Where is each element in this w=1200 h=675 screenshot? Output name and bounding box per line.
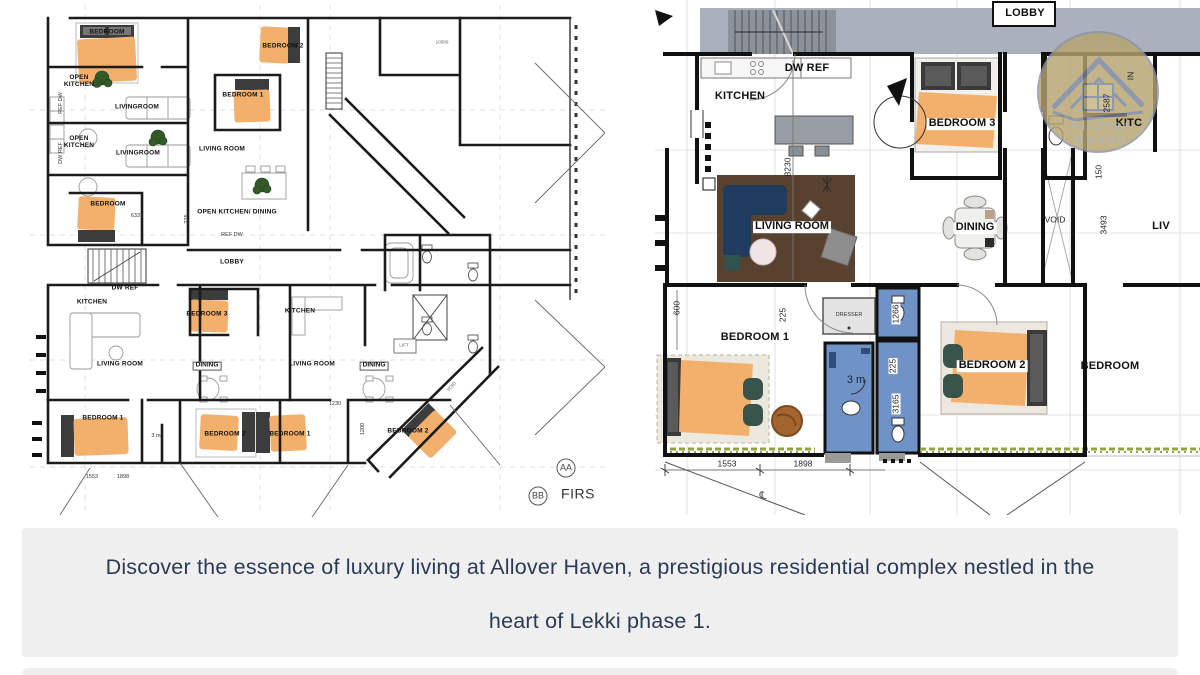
- room-label-dining: DINING: [954, 222, 997, 234]
- fixture-label-dresser: DRESSER: [836, 313, 863, 319]
- dim-label: 3493: [1100, 216, 1109, 235]
- room-label-living-room: LIVING ROOM: [97, 362, 143, 369]
- dim-label: 1898: [794, 460, 813, 469]
- caption-line-2: heart of Lekki phase 1.: [22, 594, 1178, 648]
- floorplan-right-labels: LOBBYDW REFKITCHENBEDROOM 38230LIVING RO…: [655, 0, 1200, 515]
- section-marker-aa: AA: [560, 463, 572, 472]
- room-label-bedroom1: BEDROOM 1: [82, 416, 123, 423]
- centerline-symbol: ℄: [759, 491, 766, 503]
- room-label-lobby: LOBBY: [220, 260, 244, 267]
- room-label-open-kitchen: OPEN KITCHEN: [64, 136, 94, 150]
- room-label-bedroom2: BEDROOM 2: [957, 360, 1028, 372]
- dim-label: 2587: [1103, 94, 1112, 113]
- lift-label: LIFT: [399, 344, 408, 349]
- room-label-bedroom2: BEDROOM 2: [387, 429, 428, 436]
- dim-label: 1553: [718, 460, 737, 469]
- watermark-text: Allover Haven: [1052, 119, 1151, 147]
- room-label-bedroom1: BEDROOM 1: [269, 432, 310, 439]
- dim-label: 1200: [361, 423, 367, 435]
- dim-label: 1230: [329, 402, 341, 408]
- floorplan-left-labels: BEDROOMBEDROOM 2OPEN KITCHENLIVINGROOMBE…: [30, 5, 605, 517]
- room-label-living-room: LIVING ROOM: [289, 362, 335, 369]
- room-label-lobby: LOBBY: [1005, 8, 1045, 20]
- room-label-bedroom3: BEDROOM 3: [927, 118, 998, 130]
- fixture-label: DW REF: [785, 63, 830, 75]
- dim-label: 1266: [892, 304, 901, 325]
- room-label-bedroom2: BEDROOM 2: [204, 432, 245, 439]
- dim-label: 8230: [784, 158, 793, 177]
- fixture-label: DW REF: [59, 142, 65, 164]
- floorplan-right-detail: LOBBYDW REFKITCHENBEDROOM 38230LIVING RO…: [655, 0, 1200, 515]
- room-label-living-room: LIVING ROOM: [199, 147, 245, 154]
- dim-label: 1553: [86, 475, 98, 481]
- room-label-open-kitchen-dining: OPEN KITCHEN/ DINING: [197, 210, 276, 217]
- fixture-label: REF DW: [221, 233, 243, 239]
- dim-label: 225: [779, 308, 788, 322]
- room-label-livingroom: LIVINGROOM: [116, 151, 160, 158]
- room-label-kitchen: KITCHEN: [715, 91, 765, 103]
- dim-label: 150: [1095, 165, 1104, 179]
- room-label-bedroom3: BEDROOM 3: [186, 312, 227, 319]
- fixture-label: REF DW: [59, 92, 65, 114]
- room-label-kitchen-cropped: KITC: [1116, 118, 1142, 130]
- room-label-bedroom-cropped: BEDROOM: [1081, 361, 1140, 373]
- room-label-bedroom: BEDROOM: [90, 202, 125, 209]
- caption-card: Discover the essence of luxury living at…: [22, 528, 1178, 657]
- section-marker-bb: BB: [532, 491, 544, 500]
- room-label-bedroom: BEDROOM: [89, 30, 124, 37]
- next-card-top-edge: [22, 668, 1178, 675]
- bath-label: 3 m: [151, 434, 160, 440]
- room-label-bedroom1: BEDROOM 1: [721, 332, 789, 344]
- caption-line-1: Discover the essence of luxury living at…: [22, 540, 1178, 594]
- room-label-bedroom1: BEDROOM 1: [222, 93, 263, 100]
- room-label-dining: DINING: [360, 362, 389, 371]
- room-label-living-room: LIVING ROOM: [753, 221, 831, 233]
- room-label-kitchen: KITCHEN: [285, 309, 315, 316]
- void-label: VOID: [1045, 216, 1066, 225]
- room-label-open-kitchen: OPEN KITCHEN: [64, 75, 94, 89]
- room-label-livingroom: LIVINGROOM: [115, 105, 159, 112]
- plan-title-cropped: FIRS: [561, 487, 595, 502]
- dim-label: 600: [673, 301, 682, 315]
- floorplan-left-overview: BEDROOMBEDROOM 2OPEN KITCHENLIVINGROOMBE…: [30, 5, 605, 517]
- room-label-kitchen: KITCHEN: [77, 300, 107, 307]
- dim-label: 1898: [117, 475, 129, 481]
- bath-area-label: 3 m: [847, 375, 865, 387]
- listing-page: BEDROOMBEDROOM 2OPEN KITCHENLIVINGROOMBE…: [0, 0, 1200, 675]
- room-label-bedroom2: BEDROOM 2: [262, 44, 303, 51]
- dim-label: 10589: [436, 41, 449, 46]
- dim-label: 6337: [131, 214, 143, 220]
- room-label-dining: DINING: [193, 362, 222, 371]
- dim-label: 225: [889, 358, 898, 374]
- dim-label: 3165: [892, 394, 901, 415]
- void-label: VOID: [446, 381, 457, 392]
- fixture-label: DW REF: [112, 286, 139, 293]
- room-label-living-cropped: LIV: [1152, 221, 1170, 233]
- dim-label: 225: [185, 214, 191, 223]
- entry-label: IN: [1127, 72, 1136, 81]
